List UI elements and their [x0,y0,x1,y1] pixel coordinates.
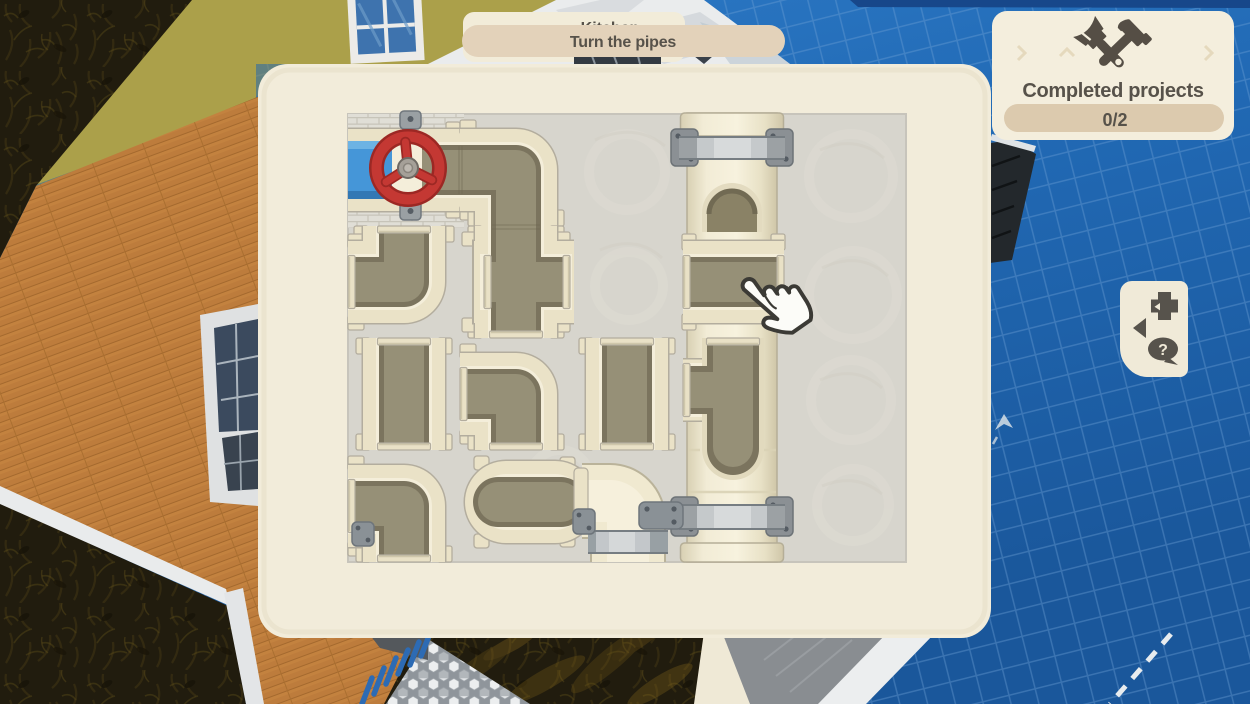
svg-text:?: ? [1158,342,1168,359]
svg-text:0/2: 0/2 [1102,110,1127,130]
svg-text:Completed projects: Completed projects [1022,80,1203,102]
svg-text:Turn the pipes: Turn the pipes [570,34,677,51]
